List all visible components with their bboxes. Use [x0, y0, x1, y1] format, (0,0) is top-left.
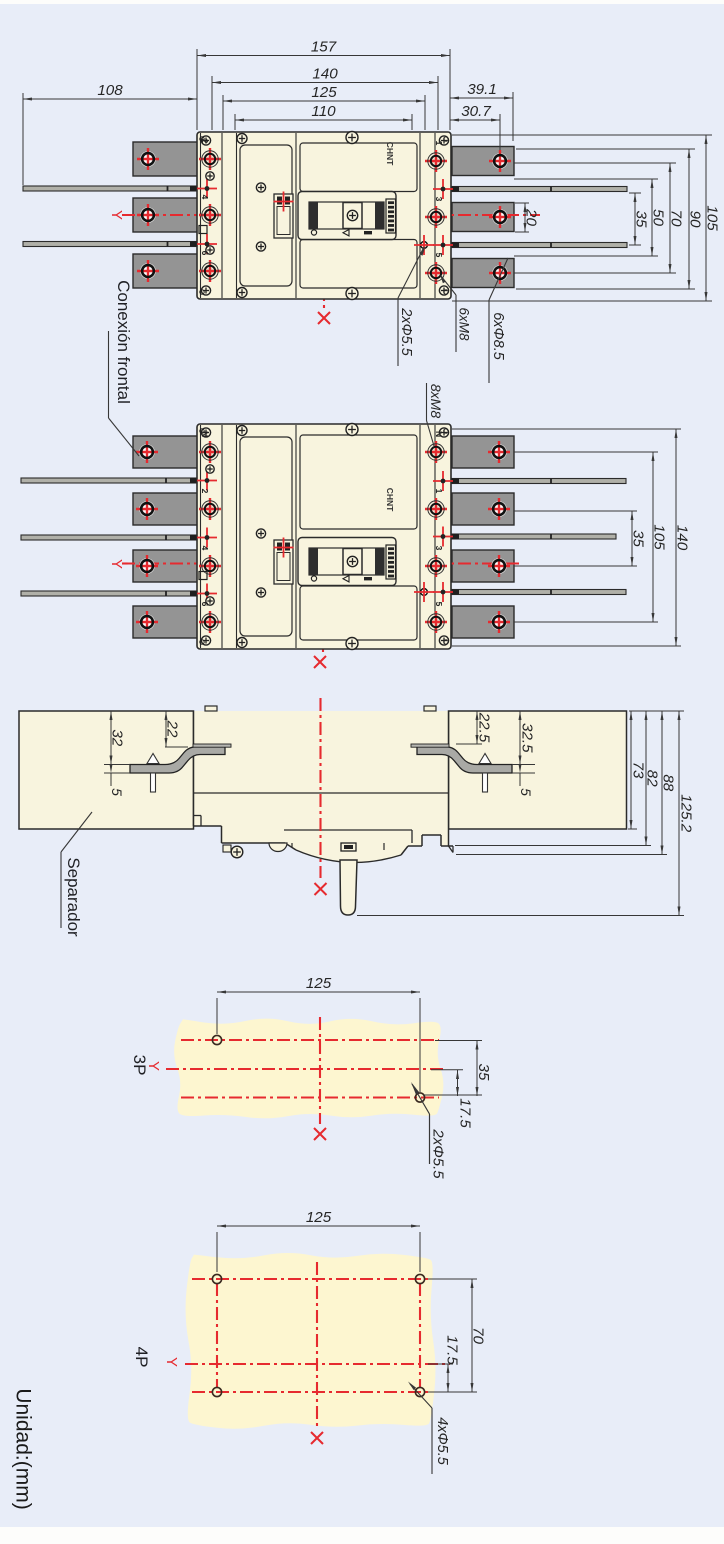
svg-text:70: 70	[470, 1327, 487, 1344]
svg-text:5: 5	[434, 602, 444, 607]
svg-text:6xM8: 6xM8	[456, 307, 471, 341]
svg-text:Unidad:(mm): Unidad:(mm)	[12, 1388, 35, 1509]
svg-text:90: 90	[687, 211, 704, 228]
svg-text:35: 35	[475, 1064, 492, 1081]
svg-text:6: 6	[200, 602, 210, 607]
svg-text:88: 88	[660, 774, 677, 791]
svg-text:5: 5	[109, 788, 125, 796]
svg-text:157: 157	[311, 39, 337, 56]
svg-text:2: 2	[200, 489, 210, 494]
svg-text:70: 70	[668, 210, 685, 227]
svg-text:125: 125	[306, 975, 332, 992]
svg-text:110: 110	[311, 103, 336, 120]
svg-text:1: 1	[434, 489, 444, 494]
svg-text:35: 35	[630, 530, 647, 547]
svg-text:17.5: 17.5	[444, 1335, 461, 1365]
svg-text:Separador: Separador	[64, 857, 83, 937]
svg-text:17.5: 17.5	[457, 1098, 474, 1128]
svg-text:1: 1	[434, 141, 444, 146]
svg-text:22: 22	[164, 720, 181, 738]
svg-text:N: N	[434, 431, 444, 437]
svg-text:CHNT: CHNT	[385, 488, 395, 512]
svg-text:Y: Y	[108, 559, 125, 569]
svg-text:140: 140	[312, 66, 338, 83]
svg-text:125: 125	[306, 1209, 332, 1226]
svg-text:N: N	[200, 431, 210, 437]
svg-text:39.1: 39.1	[467, 81, 497, 98]
svg-text:30.7: 30.7	[461, 103, 491, 120]
svg-text:Y: Y	[163, 1357, 180, 1367]
svg-text:35: 35	[633, 211, 650, 228]
svg-text:2: 2	[200, 139, 210, 144]
svg-text:3: 3	[434, 546, 444, 551]
svg-text:4: 4	[200, 546, 210, 551]
svg-text:5: 5	[434, 253, 444, 258]
svg-text:5: 5	[518, 788, 534, 796]
svg-text:8xM8: 8xM8	[428, 384, 444, 418]
svg-text:140: 140	[674, 525, 691, 551]
svg-text:4: 4	[200, 195, 210, 200]
svg-text:32: 32	[109, 729, 126, 746]
svg-text:6xΦ8.5: 6xΦ8.5	[490, 312, 506, 361]
svg-text:22.5: 22.5	[476, 712, 493, 743]
svg-text:4xΦ5.5: 4xΦ5.5	[434, 1417, 450, 1466]
svg-text:20: 20	[523, 208, 540, 226]
svg-text:CHNT: CHNT	[385, 142, 395, 166]
svg-text:Y: Y	[108, 210, 125, 220]
svg-text:3P: 3P	[130, 1055, 149, 1076]
svg-text:50: 50	[650, 209, 667, 226]
svg-text:Conexión frontal: Conexión frontal	[114, 280, 133, 404]
svg-text:105: 105	[651, 524, 668, 550]
svg-text:108: 108	[97, 82, 123, 99]
svg-text:125.2: 125.2	[678, 794, 695, 833]
svg-text:4P: 4P	[132, 1347, 151, 1368]
svg-text:6: 6	[200, 251, 210, 256]
svg-text:2xΦ5.5: 2xΦ5.5	[398, 307, 414, 357]
svg-text:125: 125	[311, 84, 337, 101]
svg-text:82: 82	[644, 770, 661, 787]
svg-text:105: 105	[704, 205, 721, 231]
svg-text:32.5: 32.5	[519, 723, 536, 753]
svg-text:3: 3	[434, 197, 444, 202]
svg-text:2xΦ5.5: 2xΦ5.5	[429, 1128, 446, 1179]
